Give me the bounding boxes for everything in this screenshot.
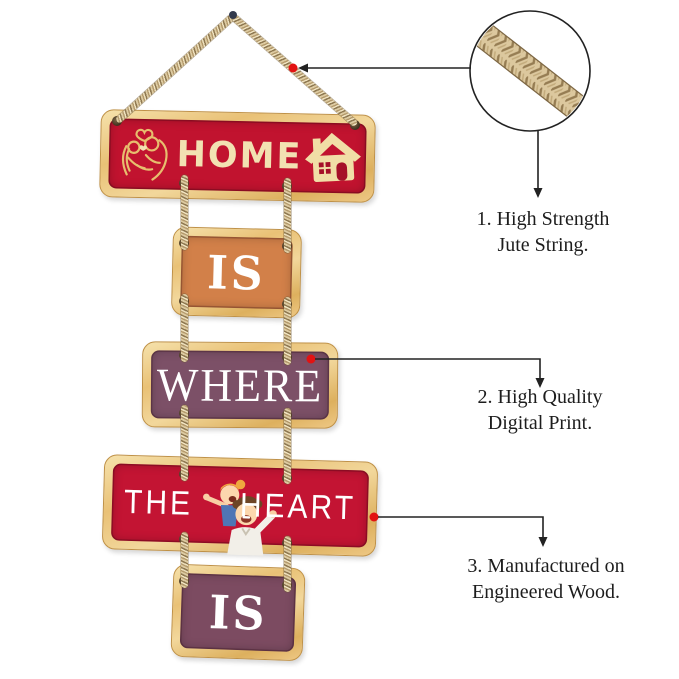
annotation-1-line-2: Jute String.: [433, 232, 653, 258]
hanging-rope-right-icon: [231, 13, 359, 126]
connector-rope-3-right-icon: [284, 408, 291, 484]
connector-rope-1-right-icon: [284, 178, 291, 253]
product-annotation-image: HOME IS: [0, 0, 679, 679]
annotation-3-line-2: Engineered Wood.: [426, 579, 666, 605]
connector-rope-4-left-icon: [181, 532, 188, 588]
connector-rope-4-right-icon: [284, 536, 291, 592]
annotation-1-line-1: 1. High Strength: [433, 206, 653, 232]
connector-rope-2-left-icon: [181, 294, 188, 362]
annotation-2: 2. High Quality Digital Print.: [430, 384, 650, 436]
annotation-2-line-2: Digital Print.: [430, 410, 650, 436]
annotation-1: 1. High Strength Jute String.: [433, 206, 653, 258]
connector-rope-3-left-icon: [181, 405, 188, 481]
annotation-2-line-1: 2. High Quality: [430, 384, 650, 410]
connector-rope-2-right-icon: [284, 297, 291, 365]
annotation-3-line-1: 3. Manufactured on: [426, 553, 666, 579]
annotation-3: 3. Manufactured on Engineered Wood.: [426, 553, 666, 605]
connector-rope-1-left-icon: [181, 175, 188, 250]
hanging-rope-left-icon: [115, 13, 236, 124]
